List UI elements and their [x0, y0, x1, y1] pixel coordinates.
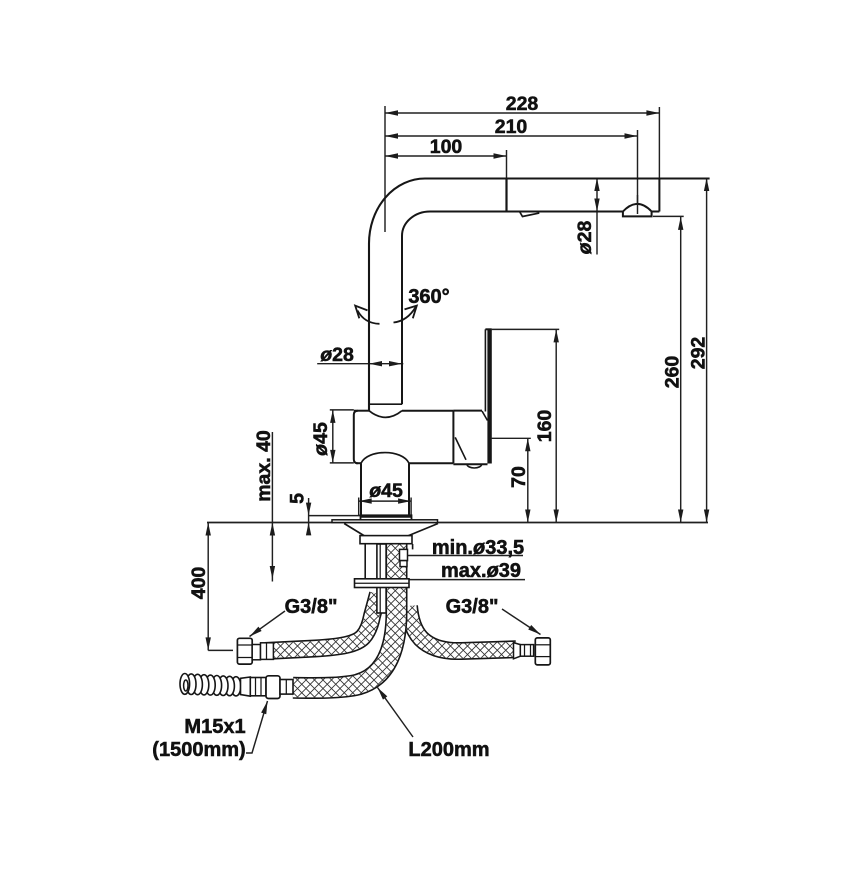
svg-text:M15x1: M15x1: [184, 716, 245, 738]
svg-text:L200mm: L200mm: [408, 739, 489, 761]
svg-text:ø45: ø45: [369, 480, 403, 502]
svg-text:max. 40: max. 40: [253, 430, 275, 502]
svg-text:70: 70: [508, 466, 530, 488]
svg-text:ø45: ø45: [310, 422, 332, 456]
svg-text:260: 260: [662, 356, 684, 389]
svg-text:400: 400: [188, 567, 210, 600]
svg-text:228: 228: [506, 93, 539, 115]
svg-text:G3/8": G3/8": [285, 596, 338, 618]
svg-text:100: 100: [430, 136, 463, 158]
svg-text:ø28: ø28: [574, 221, 596, 255]
svg-text:292: 292: [688, 337, 710, 370]
svg-text:360°: 360°: [408, 286, 449, 308]
svg-text:max.ø39: max.ø39: [441, 560, 521, 582]
svg-text:5: 5: [287, 493, 309, 504]
svg-text:(1500mm): (1500mm): [152, 739, 245, 761]
svg-text:ø28: ø28: [320, 344, 354, 366]
svg-text:160: 160: [534, 410, 556, 443]
svg-text:210: 210: [495, 116, 528, 138]
svg-text:G3/8": G3/8": [446, 596, 499, 618]
svg-text:min.ø33,5: min.ø33,5: [432, 537, 524, 559]
